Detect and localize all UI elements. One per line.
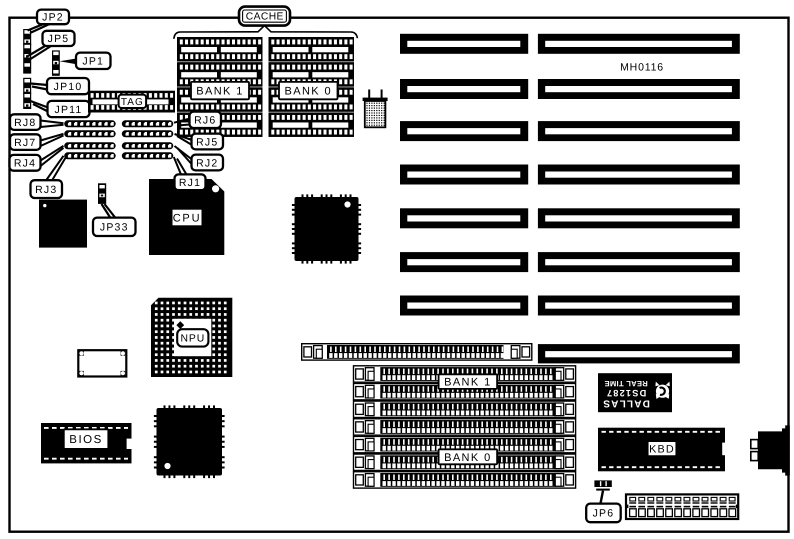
svg-text:BANK 0: BANK 0 — [444, 452, 492, 464]
svg-text:BANK 1: BANK 1 — [444, 377, 492, 389]
svg-text:RJ5: RJ5 — [196, 136, 218, 148]
svg-text:CPU: CPU — [173, 212, 202, 224]
svg-text:JP1: JP1 — [82, 56, 104, 68]
svg-text:CACHE: CACHE — [246, 12, 284, 23]
svg-text:JP33: JP33 — [100, 222, 129, 234]
svg-text:TAG: TAG — [121, 97, 144, 108]
svg-text:JP11: JP11 — [55, 104, 83, 116]
svg-text:RJ6: RJ6 — [194, 115, 216, 127]
svg-text:KBD: KBD — [649, 443, 675, 455]
svg-text:MH0116: MH0116 — [620, 62, 664, 74]
svg-text:JP5: JP5 — [48, 33, 70, 45]
svg-text:RJ8: RJ8 — [14, 117, 36, 129]
svg-text:RJ3: RJ3 — [35, 184, 57, 196]
svg-text:BANK 0: BANK 0 — [284, 86, 332, 98]
svg-text:BIOS: BIOS — [69, 434, 102, 446]
svg-text:RJ7: RJ7 — [14, 137, 36, 149]
svg-text:RJ4: RJ4 — [14, 158, 36, 170]
svg-text:DALLAS: DALLAS — [602, 397, 650, 408]
svg-text:NPU: NPU — [180, 334, 205, 345]
svg-text:JP2: JP2 — [42, 12, 64, 24]
svg-text:DS1287: DS1287 — [606, 388, 646, 398]
svg-text:RJ1: RJ1 — [179, 177, 201, 189]
svg-text:JP10: JP10 — [54, 81, 83, 93]
svg-text:JP6: JP6 — [593, 508, 615, 520]
svg-text:BANK 1: BANK 1 — [196, 86, 244, 98]
svg-text:REAL TIME: REAL TIME — [604, 379, 647, 388]
svg-text:RJ2: RJ2 — [196, 157, 218, 169]
